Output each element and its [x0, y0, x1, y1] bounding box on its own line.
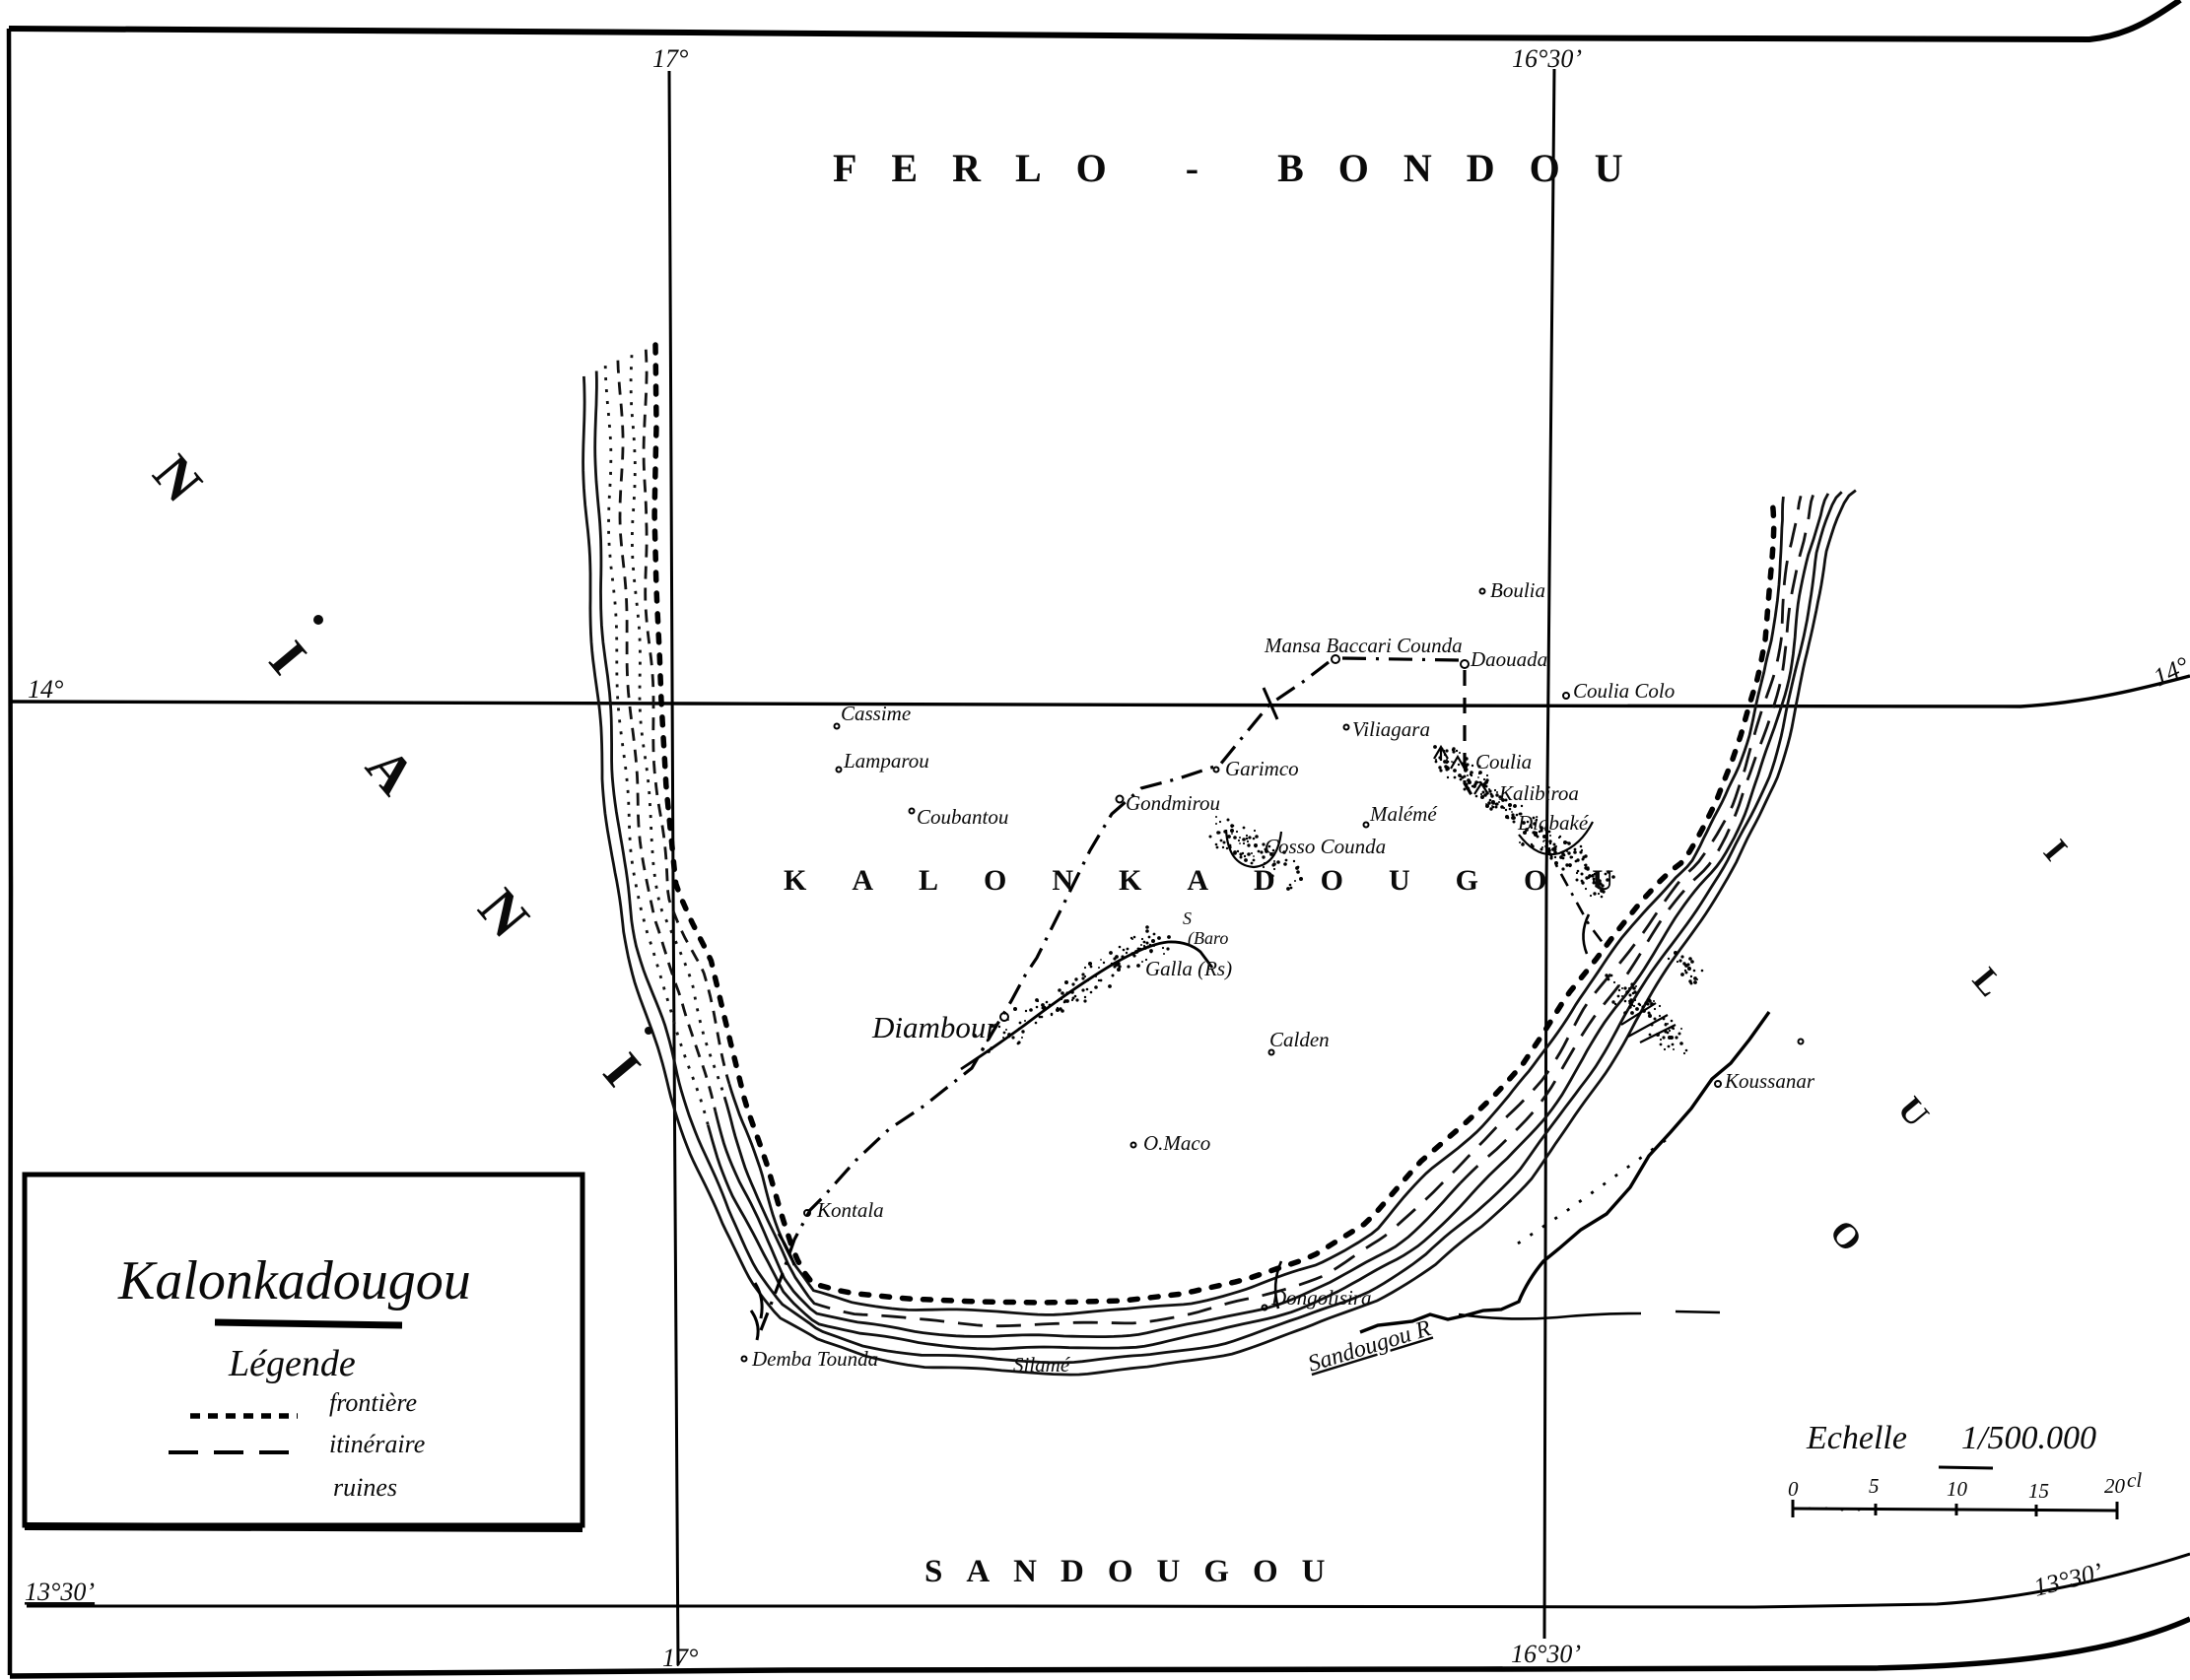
svg-text:16°30’: 16°30’: [1512, 44, 1582, 73]
svg-text:Diambour: Diambour: [871, 1010, 998, 1044]
svg-text:Cosso Counda: Cosso Counda: [1265, 835, 1386, 858]
svg-text:Kontala: Kontala: [816, 1198, 884, 1222]
svg-text:Cassime: Cassime: [841, 702, 911, 725]
svg-text:FERLO - BONDOU: FERLO - BONDOU: [833, 146, 1658, 190]
svg-text:Coulia: Coulia: [1475, 750, 1532, 773]
svg-text:Gondmirou: Gondmirou: [1126, 791, 1220, 815]
svg-text:ruines: ruines: [333, 1473, 397, 1502]
svg-text:5: 5: [1869, 1474, 1880, 1498]
svg-text:Silamé: Silamé: [1013, 1353, 1071, 1377]
svg-text:Dongolisira: Dongolisira: [1270, 1286, 1372, 1310]
svg-text:O.Maco: O.Maco: [1143, 1131, 1210, 1155]
svg-text:frontière: frontière: [329, 1388, 417, 1417]
svg-text:Boulia: Boulia: [1490, 578, 1545, 602]
svg-text:Koussanar: Koussanar: [1724, 1069, 1815, 1093]
svg-text:0: 0: [1788, 1477, 1799, 1501]
svg-text:(Baro: (Baro: [1188, 928, 1228, 949]
svg-text:16°30’: 16°30’: [1511, 1640, 1581, 1668]
svg-text:14°: 14°: [28, 675, 63, 704]
svg-text:Légende: Légende: [228, 1343, 356, 1384]
svg-text:Garimco: Garimco: [1225, 757, 1299, 780]
svg-text:Viliagara: Viliagara: [1352, 717, 1430, 741]
svg-text:SANDOUGOU: SANDOUGOU: [924, 1554, 1349, 1589]
svg-text:1/500.000: 1/500.000: [1961, 1420, 2096, 1456]
svg-text:Diabaké: Diabaké: [1517, 811, 1590, 835]
svg-text:Echelle: Echelle: [1806, 1420, 1907, 1456]
svg-text:S: S: [1183, 908, 1192, 928]
svg-text:Malémé: Malémé: [1369, 802, 1438, 826]
svg-text:20: 20: [2104, 1474, 2126, 1498]
svg-text:Mansa Baccari Counda: Mansa Baccari Counda: [1264, 634, 1463, 657]
svg-text:Calden: Calden: [1269, 1028, 1330, 1051]
svg-text:Coulia Colo: Coulia Colo: [1573, 679, 1675, 703]
svg-text:cl: cl: [2127, 1468, 2142, 1492]
svg-text:Kalibiroa: Kalibiroa: [1498, 781, 1579, 805]
svg-text:Daouada: Daouada: [1470, 647, 1547, 671]
svg-text:KALONKADOUGOU: KALONKADOUGOU: [784, 864, 1659, 897]
svg-text:Coubantou: Coubantou: [917, 805, 1008, 829]
svg-text:itinéraire: itinéraire: [329, 1430, 425, 1458]
svg-text:17°: 17°: [662, 1644, 698, 1672]
svg-text:Kalonkadougou: Kalonkadougou: [117, 1250, 471, 1311]
svg-text:10: 10: [1947, 1477, 1968, 1501]
svg-text:Demba Tounda: Demba Tounda: [751, 1347, 878, 1371]
svg-text:Galla (Rs): Galla (Rs): [1145, 957, 1232, 980]
svg-text:15: 15: [2028, 1479, 2049, 1503]
svg-text:13°30’: 13°30’: [25, 1578, 95, 1606]
svg-text:Lamparou: Lamparou: [843, 749, 929, 773]
svg-text:17°: 17°: [652, 44, 688, 73]
